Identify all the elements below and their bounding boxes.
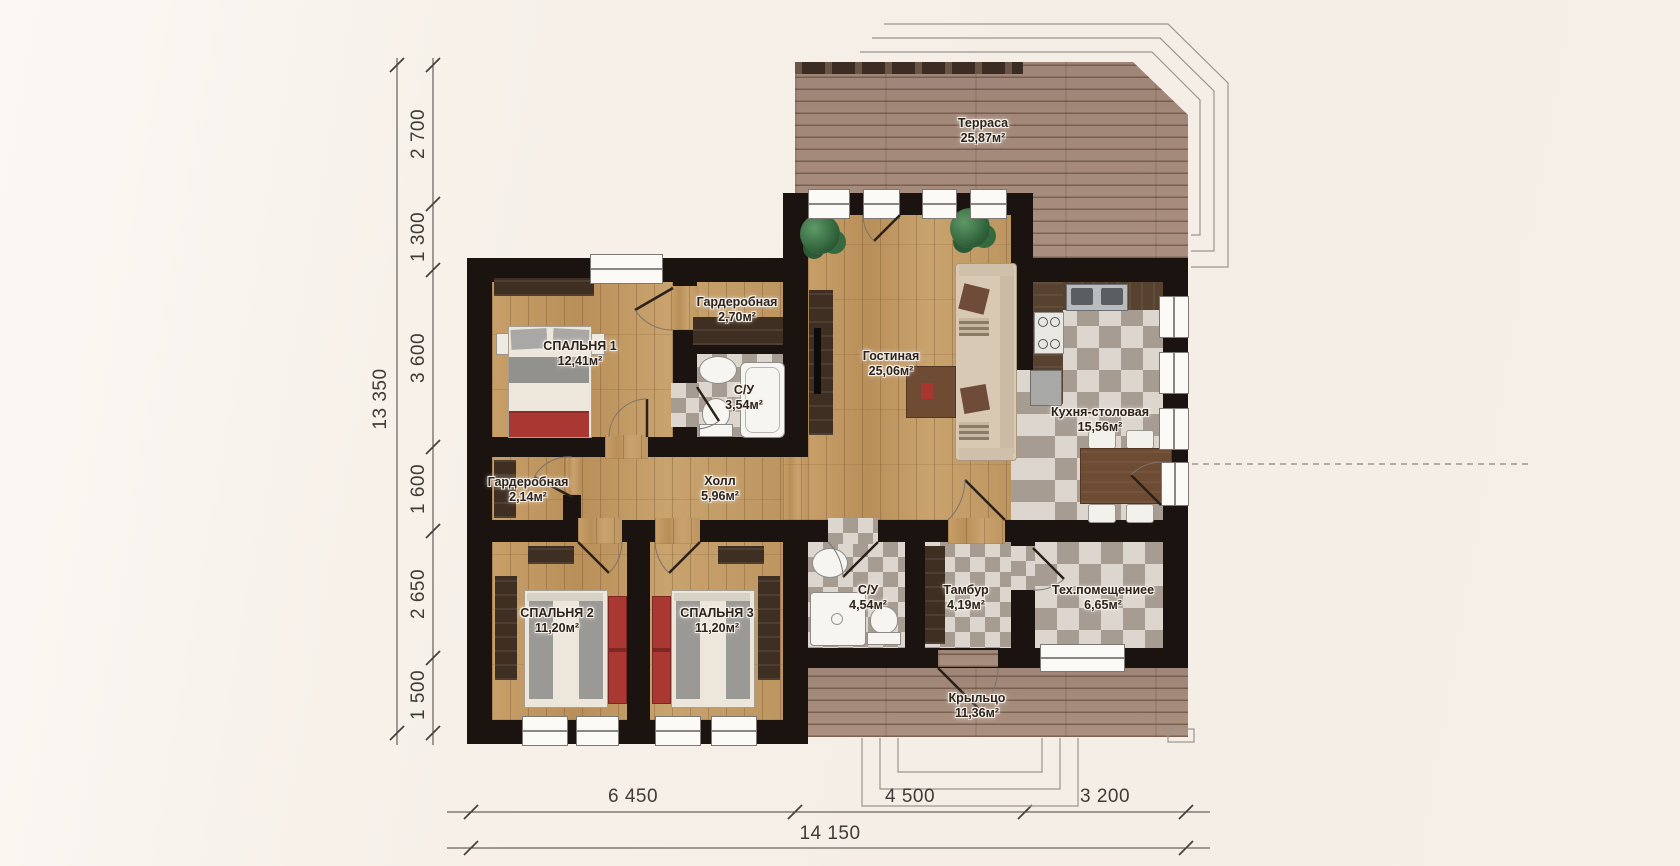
dim-height-seg-5: 2 650 xyxy=(408,569,430,619)
room-label-porch: Крыльцо 11,36м² xyxy=(949,691,1006,721)
room-name: СПАЛЬНЯ 1 xyxy=(543,339,616,354)
room-name: Терраса xyxy=(958,116,1008,131)
room-area: 4,54м² xyxy=(849,598,887,613)
room-label-bath2: С/У 4,54м² xyxy=(849,583,887,613)
room-label-bedroom2: СПАЛЬНЯ 2 11,20м² xyxy=(520,606,593,636)
room-area: 12,41м² xyxy=(543,354,616,369)
room-label-hall: Холл 5,96м² xyxy=(701,474,739,504)
room-label-tech: Тех.помещениее 6,65м² xyxy=(1052,583,1154,613)
room-name: С/У xyxy=(725,383,763,398)
dim-width-seg-3: 3 200 xyxy=(1080,786,1130,808)
terrace-step-outlines xyxy=(860,24,1228,267)
room-area: 5,96м² xyxy=(701,489,739,504)
floor-plan-canvas: Терраса 25,87м² Гостиная 25,06м² Кухня-с… xyxy=(0,0,1680,866)
room-label-living: Гостиная 25,06м² xyxy=(863,349,920,379)
dim-height-seg-3: 3 600 xyxy=(408,333,430,383)
room-area: 11,36м² xyxy=(949,706,1006,721)
room-area: 11,20м² xyxy=(680,621,753,636)
room-label-bedroom3: СПАЛЬНЯ 3 11,20м² xyxy=(680,606,753,636)
dimension-ticks xyxy=(390,58,1193,855)
dim-height-seg-2: 1 300 xyxy=(408,212,430,262)
dim-height-seg-6: 1 500 xyxy=(408,670,430,720)
room-label-wardrobe2: Гардеробная 2,14м² xyxy=(488,475,569,505)
room-area: 6,65м² xyxy=(1052,598,1154,613)
room-name: Тех.помещениее xyxy=(1052,583,1154,598)
room-area: 25,87м² xyxy=(958,131,1008,146)
dim-height-seg-1: 2 700 xyxy=(408,109,430,159)
room-name: Крыльцо xyxy=(949,691,1006,706)
room-name: С/У xyxy=(849,583,887,598)
room-area: 15,56м² xyxy=(1051,420,1149,435)
room-name: Гардеробная xyxy=(488,475,569,490)
room-label-tambour: Тамбур 4,19м² xyxy=(943,583,988,613)
dim-width-seg-2: 4 500 xyxy=(885,786,935,808)
room-area: 2,70м² xyxy=(697,310,778,325)
dim-total-height: 13 350 xyxy=(370,368,392,429)
door-swings xyxy=(534,215,1161,710)
room-label-terrace: Терраса 25,87м² xyxy=(958,116,1008,146)
room-area: 4,19м² xyxy=(943,598,988,613)
room-name: СПАЛЬНЯ 3 xyxy=(680,606,753,621)
room-label-bath1: С/У 3,54м² xyxy=(725,383,763,413)
dim-total-width: 14 150 xyxy=(799,823,860,845)
room-name: Тамбур xyxy=(943,583,988,598)
dim-height-seg-4: 1 600 xyxy=(408,464,430,514)
room-area: 3,54м² xyxy=(725,398,763,413)
plan-line-overlay xyxy=(0,0,1680,866)
room-label-wardrobe1: Гардеробная 2,70м² xyxy=(697,295,778,325)
room-name: Кухня-столовая xyxy=(1051,405,1149,420)
room-area: 25,06м² xyxy=(863,364,920,379)
room-name: Гардеробная xyxy=(697,295,778,310)
room-name: СПАЛЬНЯ 2 xyxy=(520,606,593,621)
room-label-bedroom1: СПАЛЬНЯ 1 12,41м² xyxy=(543,339,616,369)
room-name: Гостиная xyxy=(863,349,920,364)
dim-width-seg-1: 6 450 xyxy=(608,786,658,808)
room-label-kitchen: Кухня-столовая 15,56м² xyxy=(1051,405,1149,435)
room-name: Холл xyxy=(701,474,739,489)
room-area: 11,20м² xyxy=(520,621,593,636)
room-area: 2,14м² xyxy=(488,490,569,505)
